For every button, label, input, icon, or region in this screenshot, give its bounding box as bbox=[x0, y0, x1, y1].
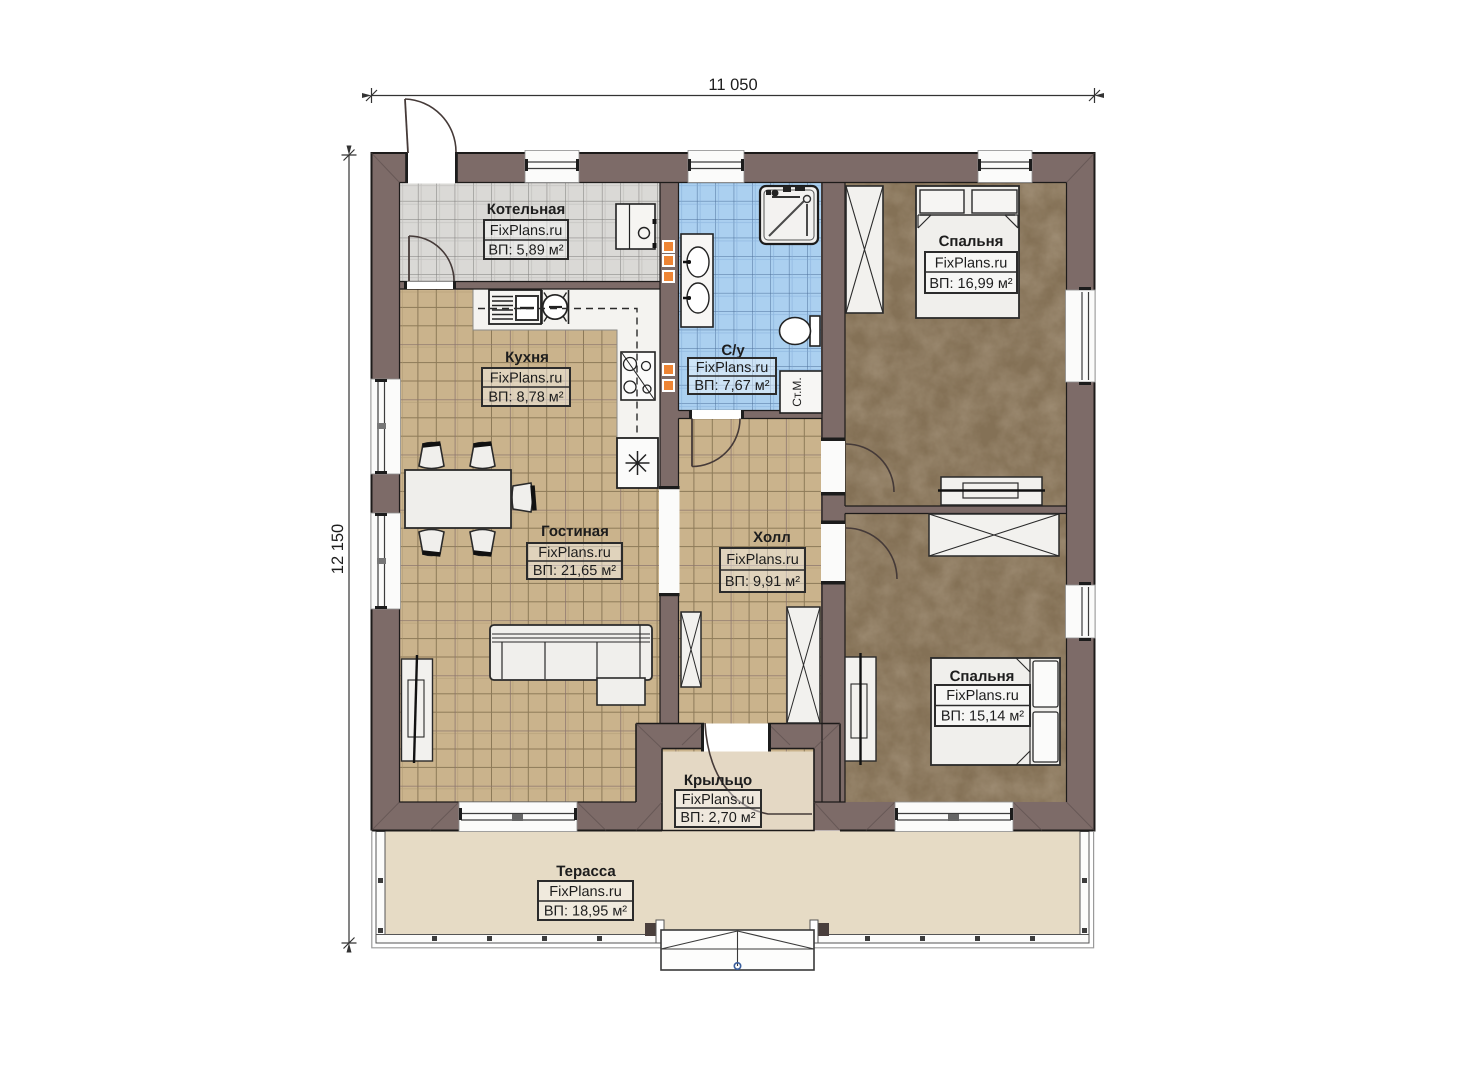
svg-text:ВП: 2,70 м²: ВП: 2,70 м² bbox=[680, 810, 755, 826]
svg-text:Ст.М.: Ст.М. bbox=[790, 377, 804, 407]
svg-text:FixPlans.ru: FixPlans.ru bbox=[935, 256, 1008, 272]
svg-text:ВП: 18,95 м²: ВП: 18,95 м² bbox=[544, 904, 627, 920]
svg-text:ВП: 7,67 м²: ВП: 7,67 м² bbox=[694, 378, 769, 394]
svg-text:Терасса: Терасса bbox=[556, 863, 616, 880]
svg-text:Холл: Холл bbox=[753, 529, 791, 546]
svg-text:FixPlans.ru: FixPlans.ru bbox=[726, 552, 799, 568]
svg-text:ВП: 21,65 м²: ВП: 21,65 м² bbox=[533, 563, 616, 579]
svg-text:12 150: 12 150 bbox=[329, 524, 347, 574]
svg-text:ВП: 15,14 м²: ВП: 15,14 м² bbox=[941, 709, 1024, 725]
svg-text:FixPlans.ru: FixPlans.ru bbox=[490, 371, 563, 387]
svg-text:ВП: 5,89 м²: ВП: 5,89 м² bbox=[488, 243, 563, 259]
svg-text:Крыльцо: Крыльцо bbox=[684, 772, 752, 789]
svg-text:ВП: 9,91 м²: ВП: 9,91 м² bbox=[725, 574, 800, 590]
svg-text:FixPlans.ru: FixPlans.ru bbox=[538, 545, 611, 561]
svg-text:FixPlans.ru: FixPlans.ru bbox=[549, 884, 622, 900]
svg-text:ВП: 8,78 м²: ВП: 8,78 м² bbox=[488, 390, 563, 406]
svg-text:FixPlans.ru: FixPlans.ru bbox=[682, 792, 755, 808]
svg-text:FixPlans.ru: FixPlans.ru bbox=[490, 223, 563, 239]
svg-text:Спальня: Спальня bbox=[950, 668, 1015, 685]
svg-text:С/у: С/у bbox=[721, 342, 745, 359]
svg-text:11 050: 11 050 bbox=[708, 76, 757, 94]
svg-text:ВП: 16,99 м²: ВП: 16,99 м² bbox=[929, 276, 1012, 292]
svg-text:Спальня: Спальня bbox=[939, 233, 1004, 250]
svg-text:Котельная: Котельная bbox=[487, 201, 566, 218]
svg-text:Гостиная: Гостиная bbox=[541, 523, 609, 540]
svg-text:FixPlans.ru: FixPlans.ru bbox=[946, 688, 1019, 704]
svg-text:FixPlans.ru: FixPlans.ru bbox=[696, 360, 769, 376]
svg-text:Кухня: Кухня bbox=[505, 349, 549, 366]
